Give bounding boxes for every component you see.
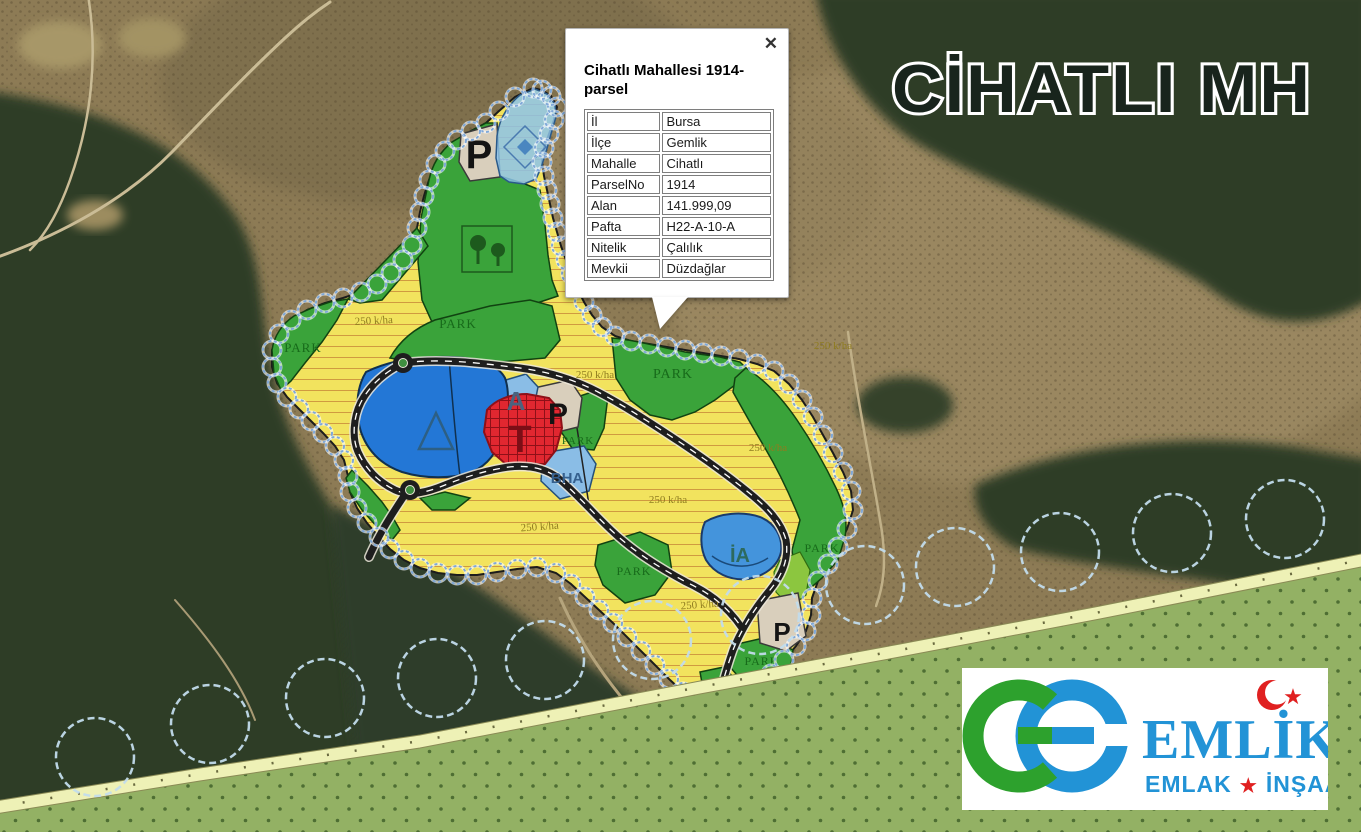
map-label: PARK: [562, 435, 594, 447]
attribute-label: İl: [587, 112, 660, 131]
map-label: P: [548, 398, 568, 431]
attribute-value: Cihatlı: [662, 154, 771, 173]
map-label: PARK: [653, 367, 693, 382]
page-title: CİHATLI MH: [892, 51, 1312, 127]
table-row: İlçeGemlik: [587, 133, 771, 152]
table-row: NitelikÇalılık: [587, 238, 771, 257]
logo-brand-text: EMLİK: [1142, 709, 1328, 771]
attribute-label: Mahalle: [587, 154, 660, 173]
map-label: T: [508, 419, 531, 461]
map-label: PARK: [805, 541, 840, 555]
attribute-value: Gemlik: [662, 133, 771, 152]
crescent-star-icon: ★: [1257, 680, 1303, 710]
popup-table-body: İlBursaİlçeGemlikMahalleCihatlıParselNo1…: [587, 112, 771, 278]
parcel-attribute-table: İlBursaİlçeGemlikMahalleCihatlıParselNo1…: [584, 109, 774, 281]
map-label: P: [466, 133, 493, 177]
attribute-label: ParselNo: [587, 175, 660, 194]
map-label: 250 k/ha: [354, 314, 393, 328]
attribute-value: Çalılık: [662, 238, 771, 257]
map-label: PARK: [617, 564, 652, 578]
table-row: MevkiiDüzdağlar: [587, 259, 771, 278]
attribute-label: İlçe: [587, 133, 660, 152]
map-label: BHA: [551, 470, 584, 487]
svg-text:★: ★: [1283, 684, 1303, 709]
attribute-label: Alan: [587, 196, 660, 215]
close-icon[interactable]: ✕: [764, 35, 778, 52]
table-row: İlBursa: [587, 112, 771, 131]
attribute-value: H22-A-10-A: [662, 217, 771, 236]
attribute-label: Mevkii: [587, 259, 660, 278]
star-icon: ★: [1240, 776, 1258, 797]
popup-tail: [652, 297, 688, 329]
attribute-value: 1914: [662, 175, 771, 194]
attribute-value: 141.999,09: [662, 196, 771, 215]
map-label: A: [507, 386, 526, 416]
attribute-label: Pafta: [587, 217, 660, 236]
logo-ge-monogram: [973, 690, 1134, 782]
map-label: PARK: [745, 654, 780, 668]
company-logo: ★ EMLİK EMLAK★İNŞAAT: [962, 668, 1328, 810]
table-row: MahalleCihatlı: [587, 154, 771, 173]
table-row: Alan141.999,09: [587, 196, 771, 215]
map-viewer: PARKPARKPARKPARKPARKPARKPARK250 k/ha250 …: [0, 0, 1361, 832]
map-label: 250 k/ha: [749, 442, 787, 454]
table-row: ParselNo1914: [587, 175, 771, 194]
table-row: PaftaH22-A-10-A: [587, 217, 771, 236]
map-label: 250 k/ha: [576, 369, 614, 381]
map-label: P: [773, 617, 790, 647]
popup-title: Cihatlı Mahallesi 1914-parsel: [584, 61, 754, 99]
map-label: 250 k/ha: [814, 340, 852, 352]
map-label: 250 k/ha: [649, 494, 687, 506]
map-label: PARK: [439, 316, 476, 331]
parcel-info-popup: ✕ Cihatlı Mahallesi 1914-parsel İlBursaİ…: [565, 28, 789, 298]
attribute-value: Düzdağlar: [662, 259, 771, 278]
logo-subtitle: EMLAK★İNŞAAT: [1145, 771, 1328, 797]
map-label: İA: [730, 544, 750, 567]
attribute-label: Nitelik: [587, 238, 660, 257]
attribute-value: Bursa: [662, 112, 771, 131]
map-label: PARK: [284, 340, 321, 355]
